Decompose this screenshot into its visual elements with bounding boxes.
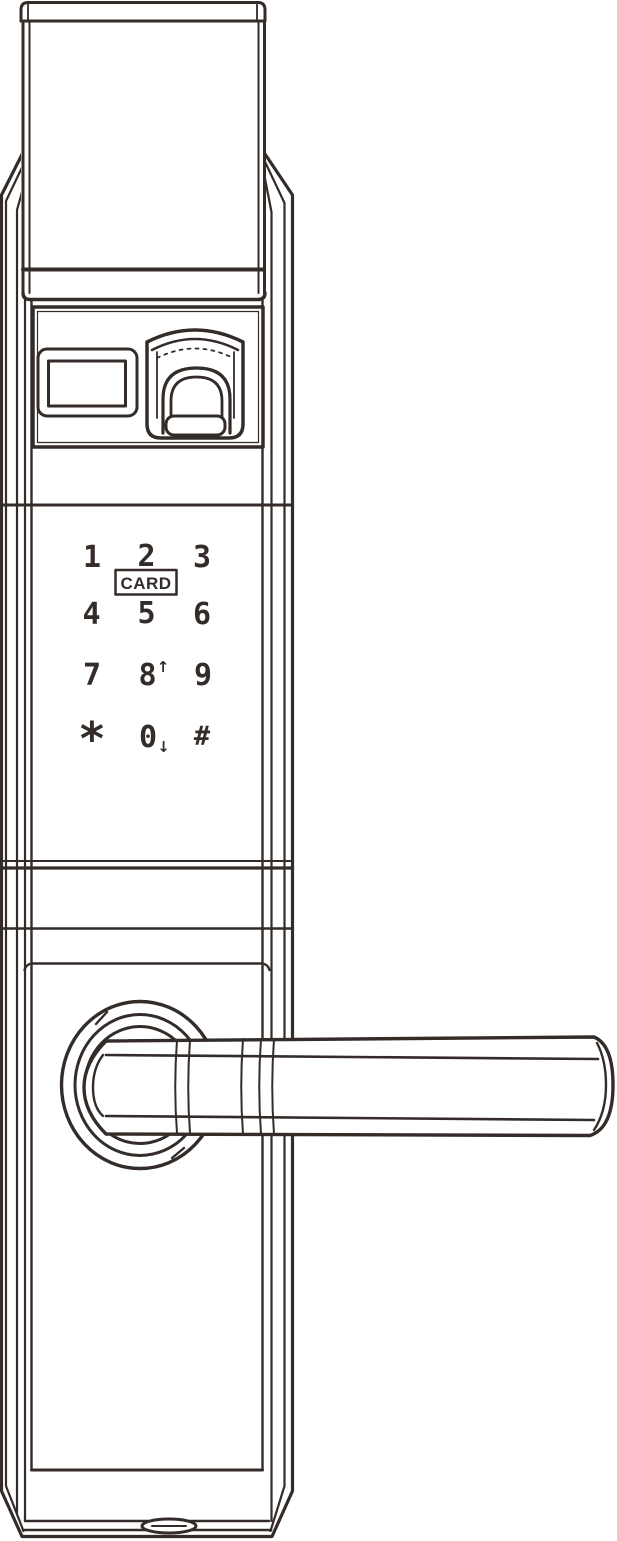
key-3-label: 3 bbox=[193, 540, 211, 575]
key-4-label: 4 bbox=[82, 597, 100, 632]
key-5[interactable]: 5 bbox=[137, 596, 155, 631]
key-1[interactable]: 1 bbox=[83, 540, 101, 575]
handle-lever[interactable] bbox=[84, 1037, 613, 1136]
down-arrow-icon: ↓ bbox=[157, 738, 170, 756]
key-hash-label: # bbox=[194, 721, 211, 752]
bottom-port bbox=[142, 1519, 196, 1533]
sensor-panel bbox=[33, 307, 263, 447]
key-3[interactable]: 3 bbox=[193, 540, 211, 575]
key-star-label: * bbox=[78, 712, 106, 766]
card-label-text: CARD bbox=[120, 574, 171, 593]
key-6-label: 6 bbox=[193, 597, 211, 632]
key-7-label: 7 bbox=[83, 658, 101, 693]
fingerprint-reader[interactable] bbox=[147, 330, 243, 438]
key-5-label: 5 bbox=[137, 596, 155, 631]
key-1-label: 1 bbox=[83, 540, 101, 575]
key-9-label: 9 bbox=[194, 658, 212, 693]
top-cover bbox=[21, 2, 265, 300]
key-4[interactable]: 4 bbox=[82, 597, 100, 632]
key-star[interactable]: * bbox=[78, 712, 106, 766]
top-cover-face bbox=[21, 2, 265, 299]
door-lock-line-drawing: 1 2 3 CARD 4 5 6 7 8 ↑ 9 * 0 ↓ # bbox=[0, 0, 617, 1541]
key-9[interactable]: 9 bbox=[194, 658, 212, 693]
key-hash[interactable]: # bbox=[194, 721, 211, 752]
smart-lock-front-view: 1 2 3 CARD 4 5 6 7 8 ↑ 9 * 0 ↓ # bbox=[0, 0, 617, 1541]
key-8-label: 8 bbox=[138, 658, 156, 693]
key-7[interactable]: 7 bbox=[83, 658, 101, 693]
up-arrow-icon: ↑ bbox=[157, 658, 170, 676]
handle[interactable] bbox=[62, 1002, 614, 1169]
card-reader-label[interactable]: CARD bbox=[116, 570, 177, 595]
key-6[interactable]: 6 bbox=[193, 597, 211, 632]
key-0-label: 0 bbox=[139, 720, 157, 755]
fingerprint-sensor-pad[interactable] bbox=[166, 416, 225, 435]
